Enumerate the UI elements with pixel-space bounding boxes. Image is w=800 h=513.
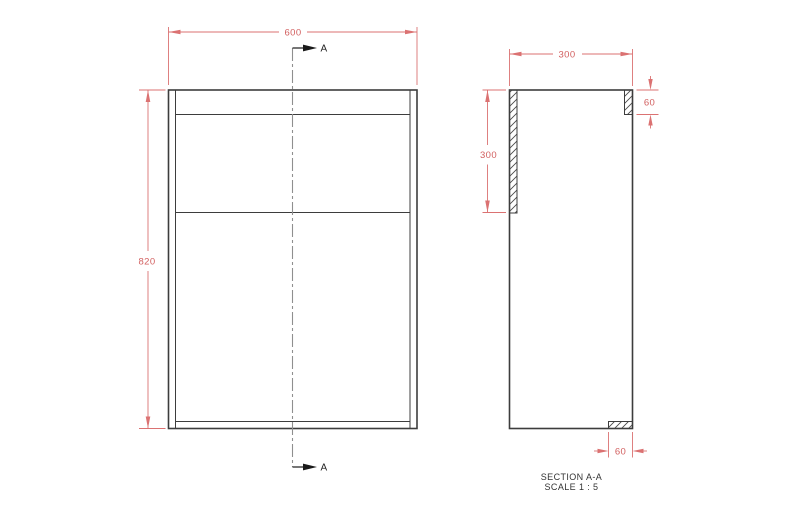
arrowhead-icon [405, 30, 417, 35]
front-height-value: 820 [138, 256, 155, 267]
section-arrow-bottom-icon [303, 464, 317, 471]
arrowhead-icon [621, 52, 633, 57]
section-width-value: 300 [558, 49, 575, 60]
arrowhead-icon [169, 30, 181, 35]
section-depth-value: 300 [480, 150, 497, 161]
dimension-60-top: 60 [637, 76, 659, 129]
top-right-cut-panel-hatch [625, 90, 633, 115]
section-caption: SECTION A-A SCALE 1 : 5 [541, 472, 602, 492]
arrowhead-icon [648, 115, 652, 126]
section-title: SECTION A-A [541, 472, 602, 482]
dimension-300-left: 300 [480, 90, 506, 213]
top-thickness-value: 60 [644, 97, 655, 108]
arrowhead-icon [510, 52, 522, 57]
arrowhead-icon [485, 201, 490, 213]
section-view [510, 90, 633, 429]
arrowhead-icon [633, 449, 644, 453]
bottom-right-cut-panel-hatch [609, 422, 633, 429]
arrowhead-icon [598, 449, 609, 453]
section-label-top: A [321, 44, 328, 55]
section-label-bottom: A [321, 463, 328, 474]
left-cut-panel-hatch [510, 90, 518, 213]
technical-drawing-canvas: A A 600 820 300 [0, 0, 800, 513]
arrowhead-icon [648, 79, 652, 90]
arrowhead-icon [146, 417, 151, 429]
front-width-value: 600 [284, 27, 301, 38]
dimension-60-bottom: 60 [594, 432, 647, 458]
drawing-page: A A 600 820 300 [0, 0, 800, 513]
cutting-plane: A A [293, 44, 328, 474]
dimension-300-top: 300 [510, 49, 633, 86]
section-view-outline [510, 90, 633, 429]
section-arrow-top-icon [303, 45, 317, 52]
bottom-thickness-value: 60 [615, 446, 626, 457]
dimension-820: 820 [138, 90, 165, 429]
arrowhead-icon [485, 90, 490, 102]
section-scale: SCALE 1 : 5 [545, 482, 599, 492]
arrowhead-icon [146, 90, 151, 102]
